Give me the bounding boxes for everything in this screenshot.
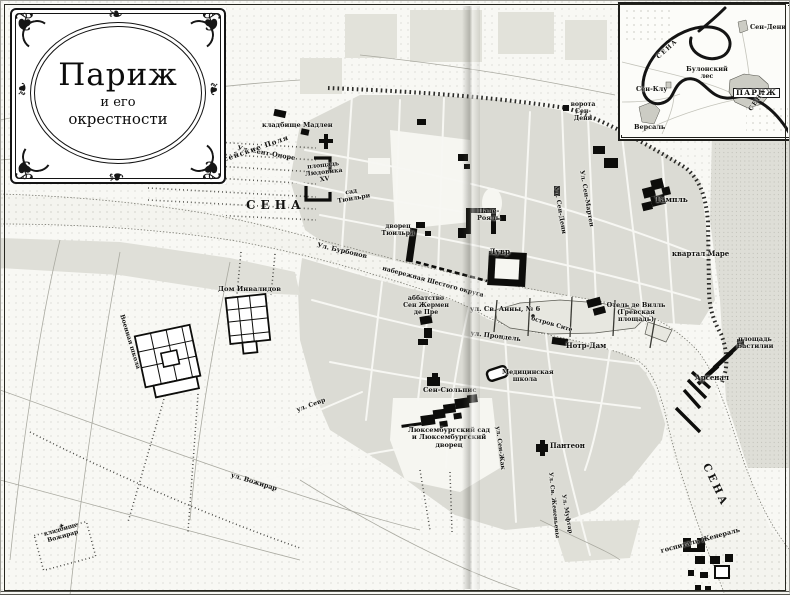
label-rue-st-anne-6: ул. Св. Анны, № 6 [470,306,540,314]
map-subtitle-line1: и его [100,96,135,109]
label-st-germain-abbey: аббатство Сен Жермен де Пре [402,296,450,317]
floral-ornament-icon: ❧ [108,167,125,187]
label-louvre: Лувр [489,248,510,256]
inset-label-boulogne: Булонский лес [686,66,728,81]
label-pantheon: Пантеон [550,442,585,450]
inset-label-st-denis: Сен-Дени [750,24,786,31]
map-title: Париж [58,60,178,91]
label-temple: Тампль [655,196,688,204]
label-st-sulpice: Сен-Сюльпис [423,387,476,395]
louvre-building [487,251,527,287]
inset-label-versailles: Версаль [634,124,665,131]
floral-ornament-icon: ❧ [108,6,123,24]
title-cartouche: ❦ ❦ ❦ ❦ ❧ ❧ ❧ ❧ Париж и его окрестности [10,8,226,184]
label-bastille-square: площадь Бастилии [736,336,774,351]
scanned-map-page: кладбище Мадлен Ул. Сент-Оноре Елисейски… [0,0,790,595]
label-arsenal: Арсенал [695,374,729,382]
label-luxembourg: Люксембургский сад и Люксембургский двор… [406,427,492,449]
label-porte-st-denis: ворота Сен-Дени [566,102,600,123]
inset-map: Сен-Дени СЕНА Булонский лес Сен-Клу ПАРИ… [618,2,790,141]
label-seine-west: СЕНА [246,199,306,212]
military-school-building [135,325,203,399]
label-madeleine-cemetery: кладбище Мадлен [262,122,333,129]
floral-ornament-icon: ❧ [15,81,33,96]
label-place-louis-xv: площадь Людовика XV [303,161,345,186]
label-hotel-de-ville: Отель де Вилль (Гревская площадь) [601,302,671,324]
map-subtitle-line2: окрестности [68,112,167,127]
label-tuileries-palace: дворец Тюильри [381,224,415,238]
cartouche-oval: Париж и его окрестности [34,26,202,160]
label-palais-royal: Пале-Рояль [475,208,502,223]
inset-label-st-cloud: Сен-Клу [636,86,667,93]
label-medical-school: Медицинская школа [502,369,548,383]
label-marais: квартал Маре [672,250,729,258]
label-notre-dame: Нотр-Дам [566,342,606,350]
floral-ornament-icon: ❧ [203,81,221,96]
label-invalides: Дом Инвалидов [218,286,281,294]
